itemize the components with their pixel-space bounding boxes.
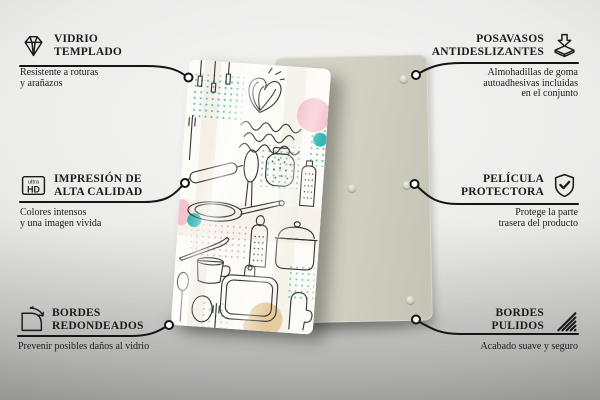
product-feature-infographic: VIDRIO TEMPLADO Resistente a roturas y a… xyxy=(0,0,600,400)
callout-description: Colores intensos y una imagen vivida xyxy=(20,208,185,229)
callout-description: Prevenir posibles daños al vidrio xyxy=(18,342,193,353)
callout-title: POSAVASOS ANTIDESLIZANTES xyxy=(432,33,544,58)
callout-header: VIDRIO TEMPLADO xyxy=(20,32,185,59)
coaster-pad-icon xyxy=(551,32,578,59)
diamond-icon xyxy=(20,32,47,59)
callout-description: Acabado suave y seguro xyxy=(413,342,578,353)
ultra-hd-icon: ultra HD xyxy=(20,172,47,199)
callout-title: VIDRIO TEMPLADO xyxy=(54,33,122,58)
callout-header: ultra HD IMPRESIÓN DE ALTA CALIDAD xyxy=(20,172,185,199)
rubber-pad xyxy=(400,75,408,83)
callout-high-quality-print: ultra HD IMPRESIÓN DE ALTA CALIDAD Color… xyxy=(20,172,185,229)
callout-antislip-coasters: POSAVASOS ANTIDESLIZANTES Almohadillas d… xyxy=(413,32,578,100)
callout-header: POSAVASOS ANTIDESLIZANTES xyxy=(413,32,578,59)
callout-header: PELÍCULA PROTECTORA xyxy=(413,172,578,199)
callout-description: Protege la parte trasera del producto xyxy=(413,208,578,229)
rubber-pad xyxy=(403,181,411,189)
callout-title: BORDES PULIDOS xyxy=(491,307,544,332)
callout-description: Resistente a roturas y arañazos xyxy=(20,68,185,89)
callout-tempered-glass: VIDRIO TEMPLADO Resistente a roturas y a… xyxy=(20,32,185,89)
callout-header: BORDES REDONDEADOS xyxy=(18,306,193,333)
kitchen-doodle-print xyxy=(171,59,331,334)
shield-check-icon xyxy=(551,172,578,199)
svg-text:HD: HD xyxy=(27,184,40,194)
callout-title: PELÍCULA PROTECTORA xyxy=(461,173,544,198)
callout-rounded-edges: BORDES REDONDEADOS Prevenir posibles dañ… xyxy=(18,306,193,353)
callout-title: BORDES REDONDEADOS xyxy=(52,307,144,332)
polished-edge-icon xyxy=(551,306,578,333)
callout-description: Almohadillas de goma autoadhesivas inclu… xyxy=(413,68,578,100)
rubber-pad xyxy=(406,296,414,304)
rubber-pad xyxy=(348,184,356,192)
callout-header: BORDES PULIDOS xyxy=(413,306,578,333)
front-board xyxy=(171,59,331,334)
rounded-corner-icon xyxy=(18,306,45,333)
callout-title: IMPRESIÓN DE ALTA CALIDAD xyxy=(54,173,142,198)
callout-protective-film: PELÍCULA PROTECTORA Protege la parte tra… xyxy=(413,172,578,229)
callout-polished-edges: BORDES PULIDOS Acabado suave y seguro xyxy=(413,306,578,353)
